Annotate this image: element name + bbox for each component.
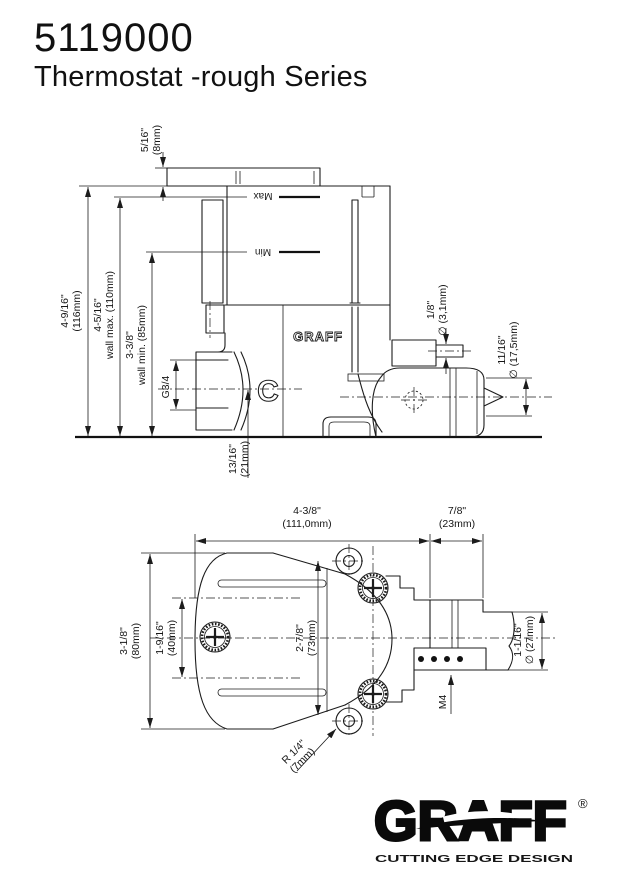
dim-hole-l1: 1/8" [425, 301, 437, 320]
dim-cartridge-l1: 11/16" [496, 335, 508, 364]
bottom-bracket-inner [329, 422, 370, 437]
dim-thread-label: M4 [437, 695, 449, 710]
front-view-dimensions: 4-3/8" (111,0mm) 7/8" (23mm) 3-1/8" (80m… [118, 505, 548, 776]
dim-port-label: G3/4 [160, 375, 172, 398]
dim-cartridge-l2: ∅ (17,5mm) [508, 322, 520, 379]
dim-height-l1: 3-1/8" [118, 627, 130, 655]
front-view-body-outline [150, 544, 556, 738]
side-view-body-outline [75, 168, 552, 437]
body-left-bulge [195, 553, 273, 729]
technical-drawing-canvas: GRAFF C Max Min 4-9/16" (116mm) [0, 0, 619, 889]
ext-width-lines [195, 534, 483, 598]
sleeve-cap [206, 305, 224, 333]
graff-logo-tagline: CUTTING EDGE DESIGN [375, 854, 573, 865]
min-depth-label: Min [255, 246, 271, 257]
ext-port [170, 360, 196, 410]
outlet-inner-lines [452, 600, 458, 648]
top-cap-ticks [236, 171, 314, 184]
dim-height-l2: (80mm) [130, 623, 142, 659]
front-view-drawing: 4-3/8" (111,0mm) 7/8" (23mm) 3-1/8" (80m… [118, 505, 556, 776]
body-brand-mark: GRAFF [293, 329, 343, 344]
dim-width-l2: (111,0mm) [282, 518, 331, 530]
cartridge-thread-crosshair [401, 387, 427, 413]
left-mounting-screw [200, 622, 230, 652]
dim-total-l1: 4-9/16" [59, 294, 71, 328]
graff-logo: GRAFF ® CUTTING EDGE DESIGN [372, 792, 608, 874]
dim-wallmax-l1: 4-5/16" [92, 298, 104, 332]
outlet-block [430, 600, 483, 648]
bottom-bracket-outer [323, 417, 376, 437]
dim-span-l1: 1-9/16" [154, 621, 166, 655]
dim-diameter-l1: 1-1/16" [512, 623, 524, 657]
port-block [196, 352, 232, 430]
dim-hole-l2: ∅ (3,1mm) [437, 284, 449, 335]
dim-cap-l2: (8mm) [151, 125, 163, 155]
dim-depth-l1: 2-7/8" [294, 624, 306, 652]
top-right-notch [362, 186, 374, 197]
registered-trademark-icon: ® [578, 796, 588, 811]
ext-cartridge [486, 378, 532, 416]
oring-dot [444, 656, 450, 662]
dim-offset-l1: 13/16" [227, 444, 239, 474]
oring-dot [457, 656, 463, 662]
oring-dot [418, 656, 424, 662]
side-view-dimensions: 4-9/16" (116mm) 4-5/16" wall max. (110mm… [59, 125, 532, 478]
lower-left-corner [218, 333, 225, 352]
dim-span-l2: (40mm) [166, 620, 178, 656]
dim-outlet-l1: 7/8" [448, 505, 467, 517]
outlet-step-top [386, 576, 430, 600]
cartridge-dome [372, 368, 484, 437]
dim-diameter-l2: ∅ (27mm) [524, 616, 536, 664]
dim-offset-l2: (21mm) [239, 441, 251, 477]
dim-total-l2: (116mm) [71, 290, 83, 331]
side-view-drawing: GRAFF C Max Min 4-9/16" (116mm) [59, 125, 552, 478]
lower-slot [218, 689, 326, 696]
port-thread-lines [196, 360, 228, 408]
dim-depth-l2: (73mm) [306, 620, 318, 656]
bottom-ear-hole [332, 704, 366, 738]
cartridge-inner-lines [450, 368, 477, 437]
outlet-step-bottom [386, 670, 414, 702]
flange-hatch-section [392, 340, 436, 366]
outlet-nipple [483, 612, 512, 670]
stem-lines [352, 307, 358, 372]
max-depth-label: Max [254, 190, 273, 201]
spec-sheet-page: 5119000 Thermostat -rough Series [0, 0, 619, 889]
dim-width-l1: 4-3/8" [293, 505, 321, 517]
top-ear-hole [332, 544, 366, 578]
dim-outlet-l2: (23mm) [439, 518, 475, 530]
dim-cap-l1: 5/16" [139, 128, 151, 152]
body-letter-mark: C [257, 375, 279, 408]
top-cap [167, 168, 320, 186]
dim-wallmax-l2: wall max. (110mm) [104, 271, 116, 360]
left-sleeve [202, 200, 223, 303]
dim-wallmin-l2: wall min. (85mm) [136, 305, 148, 386]
dim-wallmin-l1: 3-3/8" [124, 331, 136, 359]
upper-slot [218, 580, 326, 587]
oring-dot [431, 656, 437, 662]
right-sleeve [350, 200, 360, 303]
dome-left-curve [358, 374, 382, 432]
